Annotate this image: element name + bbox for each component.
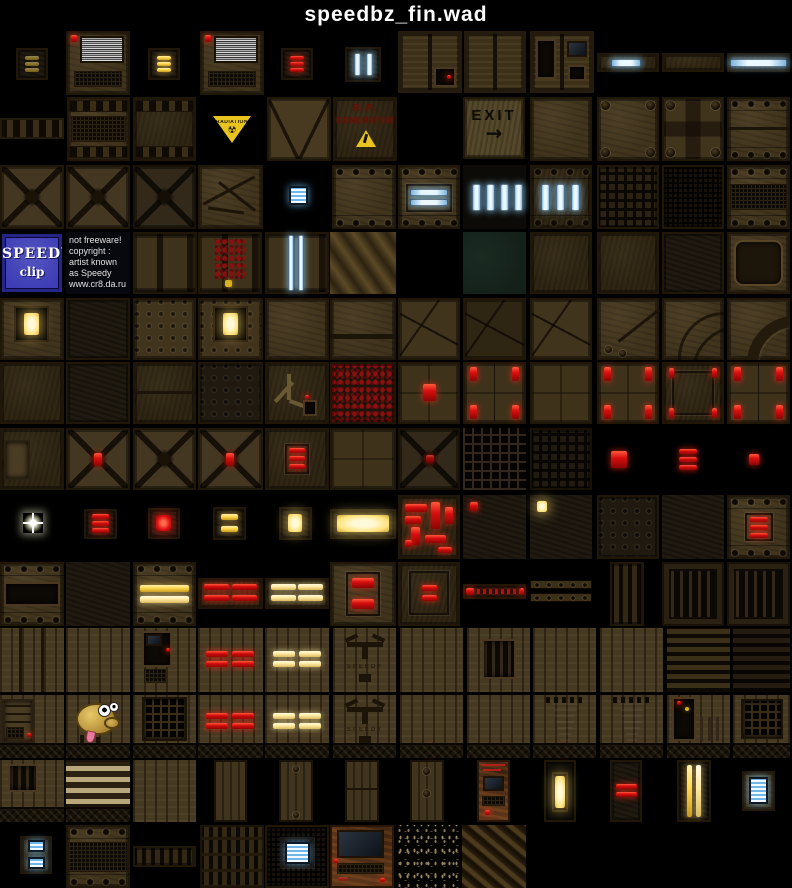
bar-detail (299, 723, 321, 729)
screendark-detail (567, 41, 587, 57)
arc-panel (662, 298, 724, 360)
radiation-sign: RADIATION☢ (200, 113, 264, 146)
blood-splatter (330, 362, 396, 424)
plank-wall (600, 628, 663, 692)
red-segment-strip (463, 584, 526, 599)
red-dot-black (727, 428, 790, 490)
door-narrow-bolts (279, 760, 313, 822)
rounded-panel (727, 232, 790, 294)
yellow-lamp-framed (279, 507, 312, 540)
dog-sprite (66, 695, 130, 758)
red-bar-pairs (198, 578, 263, 609)
console-static-screen (200, 31, 264, 95)
machine-strip (477, 760, 510, 822)
lamp-detail (223, 313, 238, 335)
dot-detail (405, 540, 412, 547)
rivetstrip-detail (530, 580, 592, 589)
boltdot-detail (711, 148, 720, 157)
bar-detail (410, 199, 448, 206)
console-static-screen (66, 31, 130, 95)
bar-detail (431, 502, 440, 529)
bar-detail (366, 53, 373, 76)
screen-tile-small (742, 771, 775, 811)
light-bars-red (281, 48, 313, 80)
meshbg-detail (208, 71, 256, 87)
txt-detail: → (469, 123, 519, 147)
bar-detail (410, 189, 448, 196)
bar-detail (232, 584, 257, 590)
x-brace-plate-dark (133, 165, 196, 229)
screen-detail (28, 840, 45, 852)
red-lamp-framed (148, 508, 180, 539)
meshbg-detail (144, 669, 166, 683)
bar-detail (273, 651, 295, 657)
bar-detail (466, 588, 474, 595)
yellow-double-framed (213, 507, 246, 540)
txt-detail: SPEEDY (337, 727, 393, 735)
bar-detail (776, 405, 783, 419)
bar-detail (352, 578, 374, 588)
bar-detail (221, 514, 238, 520)
bar-detail (405, 504, 427, 512)
bar-detail (140, 585, 189, 592)
blob-detail (104, 717, 120, 729)
screendark-detail (146, 634, 162, 646)
dot-detail (470, 502, 478, 511)
bar-detail (299, 713, 321, 719)
bar-detail (520, 588, 524, 595)
bar-detail (512, 367, 519, 381)
bar-detail (556, 184, 565, 211)
bar-detail (204, 595, 229, 601)
bar-detail (750, 533, 768, 538)
screen-detail (289, 186, 308, 205)
bar-detail (422, 585, 437, 591)
red-triple-framed (84, 509, 117, 539)
dot-detail (225, 280, 232, 287)
x-brace-red-light (66, 428, 130, 490)
metal-panel (597, 232, 659, 294)
bar-detail (470, 367, 477, 381)
x-brace-plate (133, 428, 196, 490)
inset-detail (303, 400, 317, 416)
txt-detail: GENERATOR (334, 116, 396, 126)
blue-lights-three (530, 165, 592, 229)
dot-detail (685, 707, 689, 711)
bar-detail (445, 507, 453, 524)
door-posters (398, 31, 462, 93)
red-light-black (597, 428, 659, 490)
slat-grate (200, 825, 264, 888)
bar-detail (712, 408, 717, 418)
circuit-panel (265, 362, 329, 424)
wad-title: speedbz_fin.wad (0, 2, 792, 28)
triangle-plate (198, 165, 263, 229)
dot-detail (426, 455, 434, 463)
meshbg-detail (71, 116, 126, 142)
inset-detail (142, 697, 187, 741)
static-noise (395, 825, 459, 888)
bolt-grid-panel (198, 362, 263, 424)
line-detail (618, 308, 661, 342)
line-detail (133, 391, 196, 394)
plank-wall (400, 628, 463, 692)
bar-detail (290, 68, 304, 72)
frame-detail (672, 371, 714, 415)
bar-detail (271, 595, 296, 601)
yellow-lamp-door (544, 760, 576, 822)
dot-detail (166, 648, 170, 652)
lamp-plate (0, 298, 64, 360)
yellow-tube-door (677, 760, 711, 822)
bar-detail (298, 235, 304, 291)
splat-detail (214, 238, 246, 280)
rivet-grid-plate (133, 298, 196, 360)
bar-detail (500, 184, 509, 211)
flesh-coils (462, 825, 526, 888)
bar-detail (157, 62, 171, 66)
mini-screen (265, 165, 330, 229)
plank-vent (467, 628, 530, 692)
boltdot-detail (646, 101, 655, 110)
boltdot-detail (601, 148, 610, 157)
bar-detail (472, 184, 481, 211)
holesbg-detail (135, 100, 194, 112)
grid-vent (597, 165, 659, 229)
line-detail (362, 647, 368, 659)
tongue-detail (85, 730, 96, 744)
line-detail (19, 628, 22, 692)
rp-generator-sign: R.P.GENERATOR (333, 97, 397, 161)
plank-grid-vent (733, 695, 790, 758)
bar-detail (206, 651, 228, 657)
staticbg-detail (214, 36, 258, 63)
bar-detail (645, 367, 652, 381)
bar-detail (427, 746, 434, 755)
plank-wall (467, 695, 530, 758)
yellow-bar-pairs (265, 578, 329, 609)
boltdot-detail (619, 350, 626, 357)
bar-detail (611, 451, 627, 468)
dot-detail (205, 35, 211, 42)
staticbg-detail (80, 36, 124, 63)
rivetstrip-detail (530, 593, 592, 602)
boltdot-detail (711, 101, 720, 110)
cloth-blur (330, 232, 396, 294)
line-detail (96, 737, 100, 745)
bar-detail (273, 723, 295, 729)
column-panel (133, 232, 197, 294)
boltdot-detail (666, 101, 675, 110)
bar-detail (560, 746, 567, 755)
bar-detail (226, 453, 234, 466)
txt-detail: not freeware! copyright : artist known a… (69, 235, 129, 293)
star-light (21, 511, 45, 535)
bar-detail (299, 661, 321, 667)
bar-detail (25, 62, 39, 66)
bar-detail (611, 59, 641, 67)
red-triple-black (662, 428, 724, 490)
bar-detail (232, 723, 254, 729)
bar-detail (734, 405, 741, 419)
dark-panel (662, 495, 724, 559)
line-detail (41, 628, 44, 692)
red-triple-plate (727, 495, 790, 559)
bar-detail (687, 765, 692, 817)
metal-panel (530, 232, 592, 294)
light-pause-blue (345, 47, 381, 82)
plank-circuits (667, 695, 730, 758)
screen-detail (28, 857, 45, 869)
bar-detail (669, 408, 674, 418)
bar-detail (289, 456, 305, 461)
bar-detail (298, 595, 323, 601)
x-brace-red-light (198, 428, 263, 490)
dark-panel (66, 562, 130, 626)
dark-grid-vent (530, 428, 592, 490)
v-groove-panel (267, 97, 331, 161)
meshbg-detail (74, 71, 122, 87)
bar-detail (734, 367, 741, 381)
slot-strip (133, 846, 196, 867)
light-strip-short (597, 53, 659, 72)
door-narrow-hinges (410, 760, 444, 822)
bar-detail (696, 765, 701, 817)
bar-detail (750, 517, 768, 522)
screen-detail (749, 777, 768, 804)
bar-detail (206, 713, 228, 719)
grate-strip (0, 118, 64, 139)
mesh-screen-panel (265, 825, 329, 888)
line-detail (481, 764, 505, 766)
red-double-light (610, 760, 642, 822)
white-pixel-panel (530, 495, 592, 559)
blue-bar-panel (398, 165, 460, 229)
line-detail (359, 674, 371, 682)
dot-detail (27, 733, 31, 737)
bar-detail (541, 184, 550, 211)
bar-detail (730, 59, 787, 67)
bar-detail (206, 661, 228, 667)
screendark-detail (483, 776, 504, 791)
bar-detail (604, 405, 611, 419)
boltdot-detail (601, 101, 610, 110)
plank-wall-tall (133, 760, 196, 822)
metal-panel (265, 298, 329, 360)
inset-detail (672, 697, 696, 741)
plank-wall (533, 628, 596, 692)
bar-detail (604, 367, 611, 381)
dot-detail (305, 395, 309, 399)
plank-skirt-light (400, 695, 463, 758)
slot-vent (662, 562, 724, 626)
txt-detail: R.P. (335, 104, 395, 115)
bar-detail (616, 784, 637, 789)
txt-detail: clip (2, 266, 62, 281)
bar-detail (92, 521, 109, 526)
inset-detail (434, 67, 456, 87)
red-circuit-maze (398, 495, 460, 559)
bar-detail (25, 56, 39, 60)
bar-detail (679, 457, 697, 462)
red-lamp-panel (398, 362, 460, 424)
texture-atlas: speedbz_fin.wad RADIATION☢R.P.GENERATORE… (0, 0, 792, 888)
bar-detail (289, 464, 305, 469)
line-detail (208, 207, 244, 215)
plank-yellow-pairs (265, 628, 329, 692)
light-strip-long (727, 53, 790, 72)
bar-detail (271, 584, 296, 590)
plank-vent-skirt (0, 760, 64, 822)
bolt-grid-panel (597, 495, 659, 559)
red-corner-lights (727, 362, 790, 424)
lamp-detail (24, 313, 39, 335)
inset-detail (8, 764, 38, 792)
mesh-panel (662, 165, 724, 229)
plank-diagram (0, 695, 64, 758)
bar-detail (157, 56, 171, 60)
dark-green-panel (463, 232, 526, 294)
meshbg-detail (6, 727, 24, 739)
eye-detail (109, 702, 119, 712)
lamp-detail (337, 515, 389, 532)
teeth-detail (613, 697, 651, 703)
boltdot-detail (423, 768, 430, 775)
line-detail (5, 705, 31, 707)
bar-detail (273, 661, 295, 667)
meshbg-detail (730, 184, 787, 210)
bar-detail (232, 651, 254, 657)
column-panel-graffiti (198, 232, 262, 294)
inset-detail (482, 639, 516, 679)
plank-machine (133, 628, 196, 692)
bar-detail (645, 405, 652, 419)
lamp-plate-rivets (198, 298, 263, 360)
holesbg-detail (69, 146, 128, 158)
plank-red-pairs (198, 628, 263, 692)
exit-sign: EXIT→ (463, 97, 525, 159)
bar-detail (422, 595, 437, 601)
dot-detail (485, 810, 490, 815)
shard-panel (463, 298, 526, 360)
dot-detail (334, 859, 338, 863)
boltdot-detail (666, 148, 675, 157)
door-narrow-seam (345, 760, 379, 822)
bar-detail (405, 516, 421, 524)
bar-detail (25, 68, 39, 72)
bar-detail (338, 877, 348, 881)
bar-detail (679, 465, 697, 470)
yellow-tube-lights (133, 562, 196, 626)
dot-detail (749, 454, 759, 465)
pipe-bend (727, 298, 790, 360)
plate-cross (662, 97, 724, 161)
bar-detail (273, 713, 295, 719)
bar-detail (221, 526, 238, 532)
bar-detail (411, 527, 420, 545)
yellow-wide-lamp (330, 509, 396, 539)
slot-vent (727, 562, 790, 626)
band-plate (0, 562, 64, 626)
line-detail (80, 735, 84, 744)
lamp-detail (288, 514, 302, 532)
line-detail (359, 736, 371, 743)
line-detail (5, 721, 31, 723)
monitor-machine (330, 825, 394, 888)
bar-detail (140, 596, 189, 603)
ornate-red-capsules (330, 562, 396, 626)
plank-pipes (0, 628, 64, 692)
boltdot-detail (605, 346, 612, 353)
bar-detail (289, 448, 305, 453)
slatsbg-detail (700, 717, 722, 741)
bar-detail (92, 514, 109, 519)
screen-detail (285, 842, 310, 864)
plank-yellow-pairs (265, 695, 329, 758)
bar-detail (354, 53, 361, 76)
x-brace-dark-red (398, 428, 460, 490)
bar-detail (470, 405, 477, 419)
mesh-band-plate (727, 165, 790, 229)
x-brace-plate (66, 165, 130, 229)
duct-grate-rough (133, 97, 196, 161)
line-detail (330, 334, 396, 339)
split-panel (133, 362, 196, 424)
dot-detail (677, 701, 681, 705)
star-detail (23, 513, 43, 533)
column-blue-tubes (265, 232, 329, 294)
bar-detail (232, 595, 257, 601)
rib-vent-narrow (610, 562, 644, 626)
bar-detail (299, 651, 321, 657)
boltdot-detail (423, 790, 430, 797)
dot-detail (71, 35, 77, 42)
light-bars-yellow (148, 48, 180, 80)
black-grid-vent (463, 428, 526, 490)
cross-seam-plate (330, 428, 396, 490)
bar-detail (298, 584, 323, 590)
inset-detail (741, 699, 783, 739)
inset-red-panel (398, 562, 460, 626)
inset-detail (4, 582, 60, 606)
plank-emblem: SPEEDY (333, 628, 396, 692)
bar-detail (204, 584, 229, 590)
boltdot-detail (293, 812, 299, 818)
meshbg-detail (482, 796, 505, 806)
red-corner-lights (463, 362, 526, 424)
shard-panel (398, 298, 460, 360)
plate-corner-bolts (597, 97, 659, 161)
metal-panel-dark (66, 298, 130, 360)
ribbed-wall-dark (733, 628, 790, 692)
line-detail (5, 713, 31, 715)
red-corner-lights (597, 362, 659, 424)
bar-detail (92, 528, 109, 533)
plank-hopper (600, 695, 663, 758)
void-black (398, 232, 460, 294)
speedy-clip-logo: SPEEDYclip (0, 232, 64, 294)
lamp-detail (537, 501, 547, 512)
teeth-detail (546, 697, 584, 703)
line-detail (483, 769, 501, 771)
inset-detail (536, 39, 556, 79)
txt-detail: SPEEDY (337, 664, 393, 672)
holesbg-detail (135, 146, 194, 158)
bar-detail (669, 368, 674, 378)
trap-detail (545, 703, 585, 741)
frame-detail (409, 571, 449, 615)
rivet-rails (530, 580, 592, 602)
